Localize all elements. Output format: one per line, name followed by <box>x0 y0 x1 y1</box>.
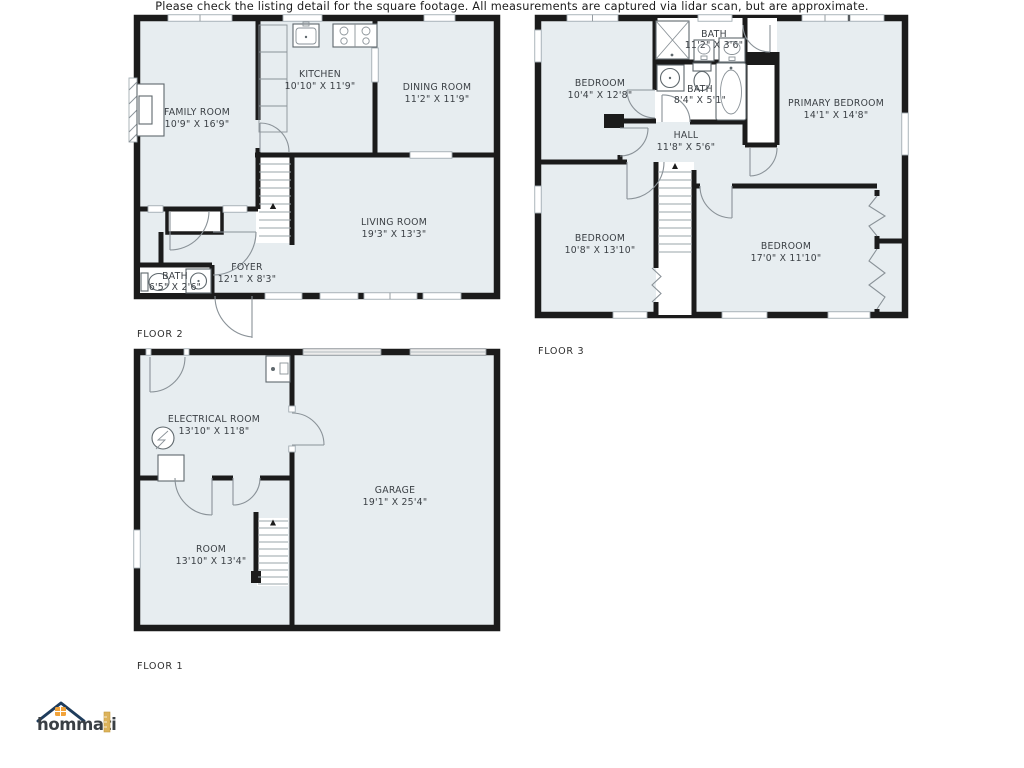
room-dims: 10'9" X 16'9" <box>165 119 230 130</box>
wall-chunk <box>745 52 777 65</box>
room-name: HALL <box>674 130 699 141</box>
room-name: BEDROOM <box>575 233 625 244</box>
floor1-plan: ELECTRICAL ROOM 13'10" X 11'8" GARAGE 19… <box>125 344 517 684</box>
room-dims: 13'10" X 13'4" <box>176 556 247 567</box>
kitchen-sink-icon <box>293 22 319 47</box>
electrical-meter-icon <box>152 427 174 449</box>
room-name: FAMILY ROOM <box>164 107 230 118</box>
room-name: BATH <box>701 29 727 40</box>
room-dims: 11'8" X 5'6" <box>657 142 716 153</box>
floor3-plan: BEDROOM 10'4" X 12'8" BATH 11'2" X 3'6" … <box>528 8 920 360</box>
room-dims: 10'10" X 11'9" <box>285 81 356 92</box>
floor2-plan: FAMILY ROOM 10'9" X 16'9" KITCHEN 10'10"… <box>125 8 517 348</box>
floor3-label: FLOOR 3 <box>538 346 584 357</box>
stairwell-floor <box>656 162 694 315</box>
room-dims: 10'8" X 13'10" <box>565 245 636 256</box>
hommati-logo: hommati <box>34 696 120 740</box>
pedestal-sink-icon <box>657 65 684 91</box>
room-dims: 8'4" X 5'1" <box>674 95 726 106</box>
room-dims: 11'2" X 3'6" <box>685 40 744 51</box>
room-dims: 14'1" X 14'8" <box>804 110 869 121</box>
floor1-outline <box>137 352 497 628</box>
floor2-label: FLOOR 2 <box>137 329 183 340</box>
room-dims: 17'0" X 11'10" <box>751 253 822 264</box>
electrical-panel-icon <box>158 455 184 481</box>
floor1-label: FLOOR 1 <box>137 661 183 672</box>
stove-icon <box>333 24 377 47</box>
ruler-icon <box>104 712 110 732</box>
room-dims: 13'10" X 11'8" <box>179 426 250 437</box>
room-name: BEDROOM <box>761 241 811 252</box>
closet-floor <box>167 209 222 233</box>
room-name: BEDROOM <box>575 78 625 89</box>
room-name: DINING ROOM <box>403 82 472 93</box>
room-name: FOYER <box>231 262 263 273</box>
disclaimer-text: Please check the listing detail for the … <box>0 0 1024 13</box>
stairwell-floor <box>256 157 292 243</box>
room-dims: 19'1" X 25'4" <box>363 497 428 508</box>
closet-floor <box>745 18 777 148</box>
room-name: PRIMARY BEDROOM <box>788 98 884 109</box>
water-heater-icon <box>266 356 290 382</box>
room-name: GARAGE <box>375 485 415 496</box>
room-dims: 10'4" X 12'8" <box>568 90 633 101</box>
room-dims: 11'2" X 11'9" <box>405 94 470 105</box>
room-dims: 12'1" X 8'3" <box>218 274 277 285</box>
room-name: LIVING ROOM <box>361 217 427 228</box>
room-name: KITCHEN <box>299 69 341 80</box>
bathtub-icon <box>716 63 746 120</box>
wall-chase <box>604 114 624 128</box>
room-name: ROOM <box>196 544 226 555</box>
room-dims: 6'5" X 2'6" <box>149 282 201 293</box>
room-name: BATH <box>687 84 713 95</box>
floorplan-page: FAMILY ROOM 10'9" X 16'9" KITCHEN 10'10"… <box>0 0 1024 768</box>
room-dims: 19'3" X 13'3" <box>362 229 427 240</box>
fireplace-icon <box>129 78 164 142</box>
room-name: BATH <box>162 271 188 282</box>
room-name: ELECTRICAL ROOM <box>168 414 260 425</box>
